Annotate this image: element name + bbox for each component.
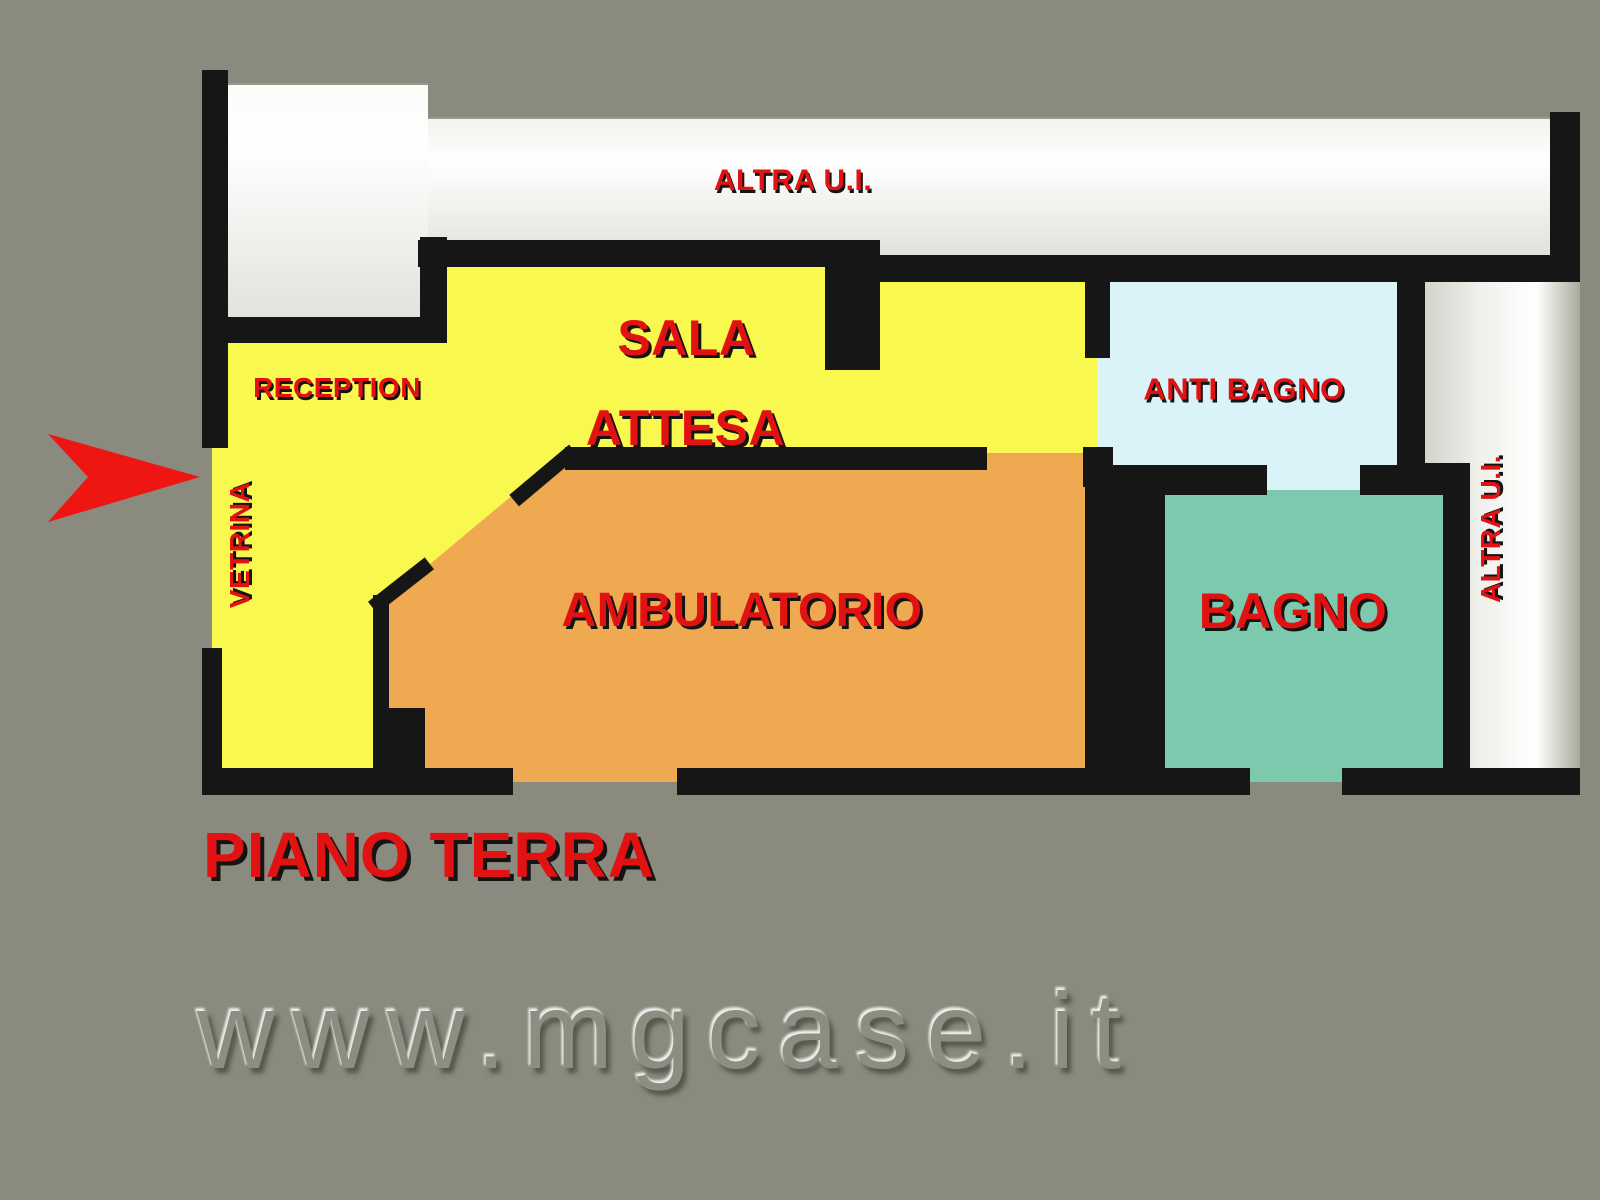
label-anti-bagno: ANTI BAGNO — [1143, 374, 1344, 405]
label-vetrina: VETRINA — [226, 482, 254, 608]
other-unit-top-notch — [228, 83, 428, 322]
wall — [202, 317, 447, 343]
floor-title: PIANO TERRA — [203, 818, 655, 892]
wall — [1085, 487, 1165, 795]
label-sala-attesa: SALA ATTESA — [559, 271, 785, 451]
label-sala-attesa-line2: ATTESA — [586, 400, 785, 456]
label-altra-ui-top: ALTRA U.I. — [714, 166, 872, 196]
wall — [1550, 112, 1580, 282]
label-reception: RECEPTION — [253, 374, 421, 402]
wall — [373, 595, 389, 715]
entrance-arrow-icon — [48, 424, 203, 530]
wall — [1360, 465, 1445, 495]
wall — [1443, 463, 1470, 795]
wall — [202, 70, 228, 448]
wall — [825, 255, 880, 370]
floorplan-page: { "floorplan": { "floor_title": "PIANO T… — [0, 0, 1600, 1200]
wall — [1085, 282, 1110, 358]
wall — [868, 255, 1553, 282]
wall — [202, 768, 513, 795]
label-ambulatorio: AMBULATORIO — [561, 587, 922, 635]
watermark-text: www.mgcase.it — [197, 968, 1138, 1093]
wall — [1085, 465, 1267, 495]
label-sala-attesa-line1: SALA — [617, 310, 755, 366]
wall — [418, 240, 880, 267]
wall — [1397, 255, 1425, 483]
wall — [677, 768, 1250, 795]
label-altra-ui-right: ALTRA U.I. — [1477, 455, 1505, 603]
label-bagno: BAGNO — [1199, 586, 1388, 636]
wall — [373, 708, 425, 770]
other-unit-top-band — [428, 117, 1553, 260]
wall — [1342, 768, 1580, 795]
